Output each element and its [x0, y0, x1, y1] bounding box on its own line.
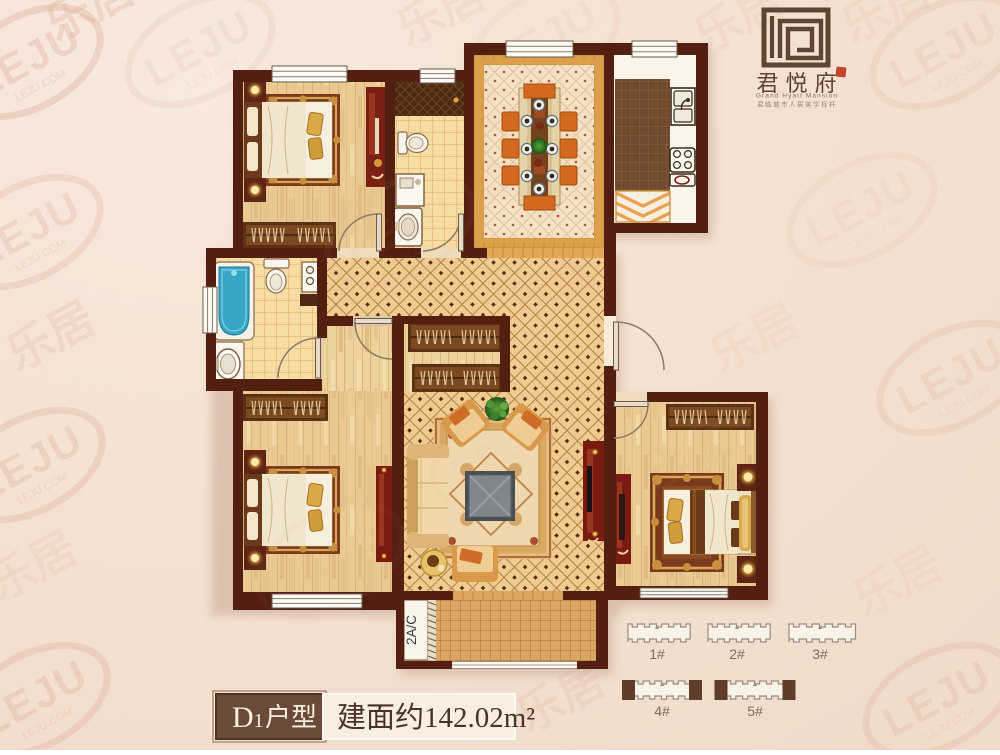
svg-text:4#: 4# [654, 703, 670, 719]
svg-text:3#: 3# [812, 646, 828, 662]
svg-text:2A/C: 2A/C [404, 615, 419, 645]
svg-text:5#: 5# [747, 703, 763, 719]
svg-text:Grand Hyatt Mansion: Grand Hyatt Mansion [756, 93, 838, 100]
svg-text:户型: 户型 [265, 703, 317, 732]
svg-text:君临城市人居美学标杆: 君临城市人居美学标杆 [757, 100, 837, 109]
svg-text:建面约142.02m²: 建面约142.02m² [337, 701, 535, 734]
svg-text:1#: 1# [649, 646, 665, 662]
svg-text:2#: 2# [729, 646, 745, 662]
